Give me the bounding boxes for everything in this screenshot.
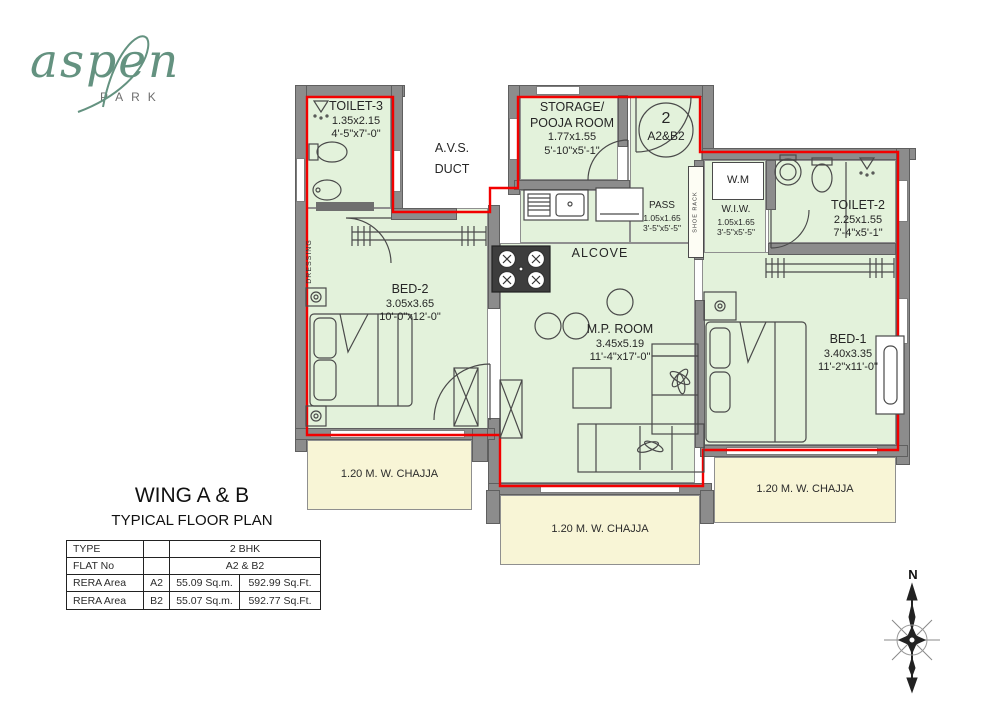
window (296, 158, 305, 202)
room-dim-m: 3.40x3.35 (796, 348, 900, 362)
pass-label: PASS 1.05x1.65 3'-5"x5'-5" (628, 200, 696, 234)
room-dim-ft: 11'-2"x11'-0" (796, 361, 900, 375)
table-cell: TYPE (67, 541, 144, 558)
window (726, 447, 878, 455)
avs-duct-label: A.V.S. DUCT (412, 138, 492, 181)
table-cell: A2 & B2 (170, 558, 320, 575)
wall (486, 490, 500, 524)
wall (702, 148, 916, 160)
room-dim-m: 3.45x5.19 (564, 338, 676, 352)
dressing-label: DRESSING (306, 239, 313, 284)
table-cell: B2 (144, 592, 170, 609)
duct-line1: A.V.S. (412, 138, 492, 159)
table-cell: 592.99 Sq.Ft. (240, 575, 320, 592)
wall (700, 490, 714, 524)
wall (391, 208, 457, 220)
room-name: W.I.W. (704, 204, 768, 217)
room-name: PASS (628, 200, 696, 213)
chajja-middle: 1.20 M. W. CHAJJA (500, 495, 700, 565)
room-dim-ft: 3'-5"x5'-5" (704, 227, 768, 238)
table-cell: RERA Area (67, 575, 144, 592)
table-cell: RERA Area (67, 592, 144, 609)
table-cell: 2 BHK (170, 541, 320, 558)
washing-machine: W.M (712, 162, 764, 200)
toilet-2-label: TOILET-2 2.25x1.55 7'-4"x5'-1" (806, 198, 910, 241)
room-kitchen (520, 190, 630, 243)
window (509, 118, 518, 160)
window (540, 485, 680, 493)
chajja-right-label: 1.20 M. W. CHAJJA (715, 483, 895, 495)
bed-1-label: BED-1 3.40x3.35 11'-2"x11'-0" (796, 332, 900, 375)
room-dim-m: 1.05x1.65 (628, 213, 696, 224)
vanity-counter (316, 202, 374, 211)
room-name: POOJA ROOM (522, 116, 622, 132)
table-cell: A2 (144, 575, 170, 592)
toilet-3-label: TOILET-3 1.35x2.15 4'-5"x7'-0" (312, 99, 400, 142)
table-cell: 55.09 Sq.m. (170, 575, 240, 592)
duct-line2: DUCT (412, 159, 492, 180)
window (392, 150, 401, 192)
brand-logo-sub: PARK (100, 90, 164, 104)
room-name: TOILET-2 (806, 198, 910, 214)
window (330, 430, 465, 438)
unit-number: 2 (640, 109, 692, 129)
room-dim-m: 3.05x3.65 (358, 298, 462, 312)
chajja-right: 1.20 M. W. CHAJJA (714, 457, 896, 523)
room-dim-ft: 4'-5"x7'-0" (312, 128, 400, 142)
room-dim-m: 1.77x1.55 (522, 131, 622, 145)
room-dim-ft: 5'-10"x5'-1" (522, 145, 622, 159)
washing-machine-label: W.M (713, 174, 763, 188)
unit-marker-label: 2 A2&B2 (640, 109, 692, 144)
wall (295, 85, 405, 97)
table-cell: FLAT No (67, 558, 144, 575)
wiw-label: W.I.W. 1.05x1.65 3'-5"x5'-5" (704, 204, 768, 238)
room-name: ALCOVE (558, 246, 642, 262)
compass-north-label: N (903, 567, 923, 582)
chajja-middle-label: 1.20 M. W. CHAJJA (501, 523, 699, 535)
bed-2-label: BED-2 3.05x3.65 10'-0"x12'-0" (358, 282, 462, 325)
room-name: M.P. ROOM (564, 322, 676, 338)
chajja-left: 1.20 M. W. CHAJJA (307, 440, 472, 510)
floor-plan-sheet: aspen PARK 1.20 M. W. CHAJJA 1.20 M. W. … (0, 0, 1000, 710)
room-dim-ft: 7'-4"x5'-1" (806, 227, 910, 241)
plan-title: WING A & B (70, 484, 314, 508)
mp-room-label: M.P. ROOM 3.45x5.19 11'-4"x17'-0" (564, 322, 676, 365)
wall (514, 180, 630, 190)
table-cell: 592.77 Sq.Ft. (240, 592, 320, 609)
dressing-label-wrap: DRESSING (300, 228, 318, 294)
wall (472, 428, 488, 462)
room-dim-ft: 10'-0"x12'-0" (358, 311, 462, 325)
room-dim-m: 2.25x1.55 (806, 214, 910, 228)
wall (695, 300, 705, 448)
room-name: STORAGE/ (522, 100, 622, 116)
brand-logo: aspen (30, 34, 180, 89)
table-cell: 55.07 Sq.m. (170, 592, 240, 609)
alcove-label: ALCOVE (558, 246, 642, 262)
plan-subtitle: TYPICAL FLOOR PLAN (70, 512, 314, 529)
room-dim-ft: 11'-4"x17'-0" (564, 351, 676, 365)
room-name: BED-1 (796, 332, 900, 348)
table-cell (144, 541, 170, 558)
wall (488, 205, 500, 309)
room-dim-m: 1.35x2.15 (312, 115, 400, 129)
storage-pooja-label: STORAGE/ POOJA ROOM 1.77x1.55 5'-10"x5'-… (522, 100, 622, 159)
room-dim-m: 1.05x1.65 (704, 217, 768, 228)
wall (768, 243, 896, 255)
compass-rose (884, 584, 940, 692)
rera-info-table: TYPE 2 BHK FLAT No A2 & B2 RERA Area A2 … (66, 540, 321, 610)
room-name: BED-2 (358, 282, 462, 298)
table-cell (144, 558, 170, 575)
window (536, 86, 580, 95)
chajja-left-label: 1.20 M. W. CHAJJA (308, 468, 471, 480)
wall (766, 160, 776, 210)
room-name: TOILET-3 (312, 99, 400, 115)
room-dim-ft: 3'-5"x5'-5" (628, 223, 696, 234)
unit-flats: A2&B2 (640, 129, 692, 144)
